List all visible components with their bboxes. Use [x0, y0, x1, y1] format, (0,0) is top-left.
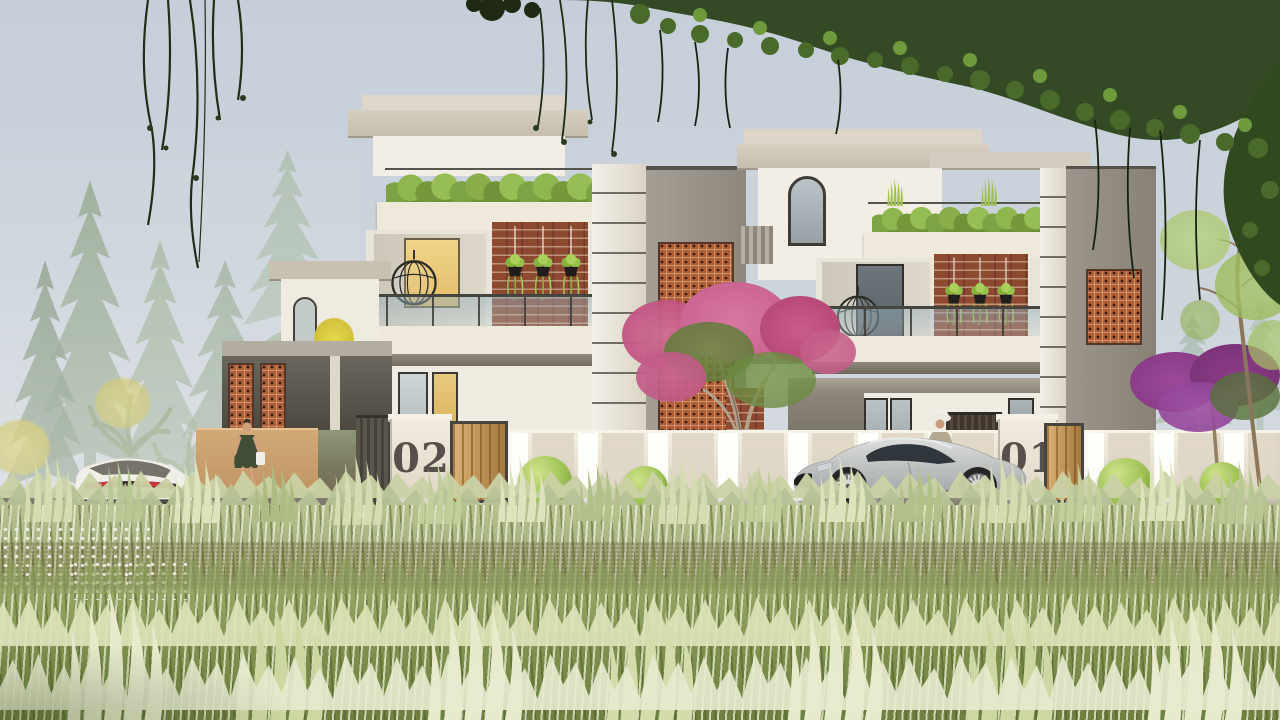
- grass-tuft: [415, 462, 465, 524]
- grass-tuft: [575, 463, 623, 521]
- grass-tuft: [330, 455, 386, 525]
- grass-tuft: [1215, 460, 1267, 524]
- grass-tuft: [95, 460, 145, 522]
- grass-tuft: [895, 462, 945, 522]
- grass-tuft: [1055, 462, 1105, 522]
- grass-shadow-corner: [0, 640, 300, 720]
- grass-tuft: [815, 456, 869, 522]
- grass-tuft: [655, 456, 711, 524]
- grass-tuft: [250, 462, 298, 522]
- grass-spikes-mid: [0, 552, 1280, 594]
- architectural-render-scene: 02 01: [0, 0, 1280, 720]
- overhanging-canopy: [0, 0, 1280, 340]
- grass-tuft: [20, 452, 76, 522]
- grass-tuft: [170, 455, 224, 523]
- grass-tuft: [735, 462, 785, 522]
- grass-tuft: [1135, 455, 1189, 521]
- grass-tuft: [495, 456, 549, 522]
- grass-tuft: [975, 455, 1031, 523]
